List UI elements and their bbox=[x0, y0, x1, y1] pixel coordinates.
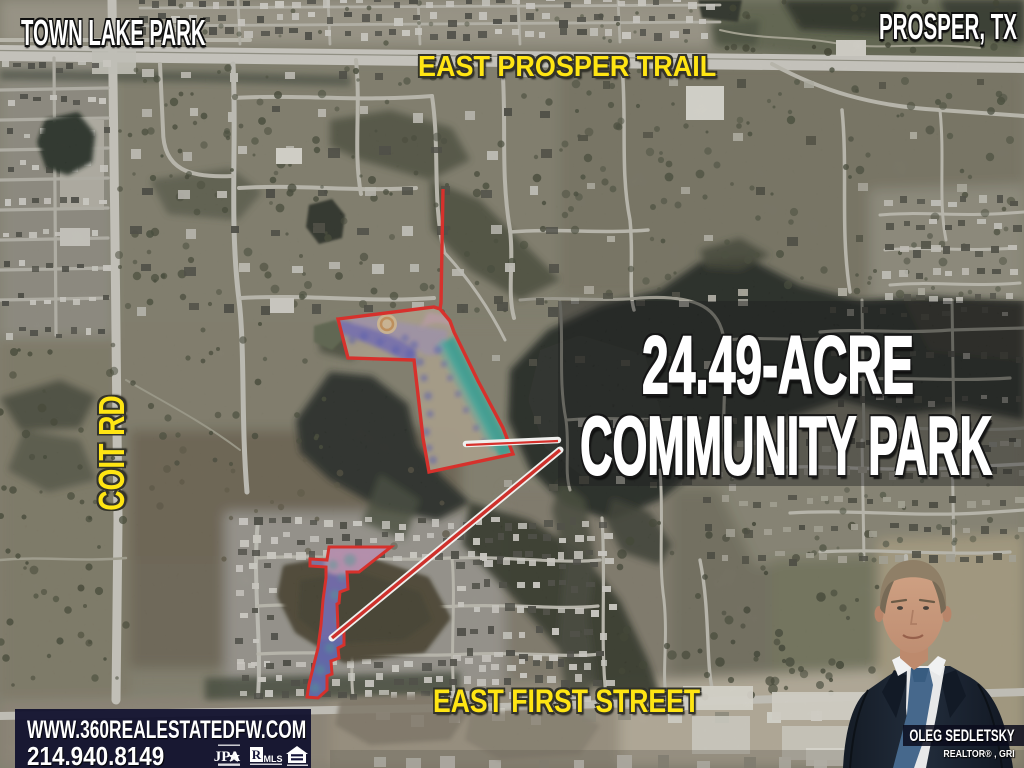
svg-text:MLS: MLS bbox=[264, 754, 283, 764]
svg-text:R: R bbox=[252, 747, 262, 762]
